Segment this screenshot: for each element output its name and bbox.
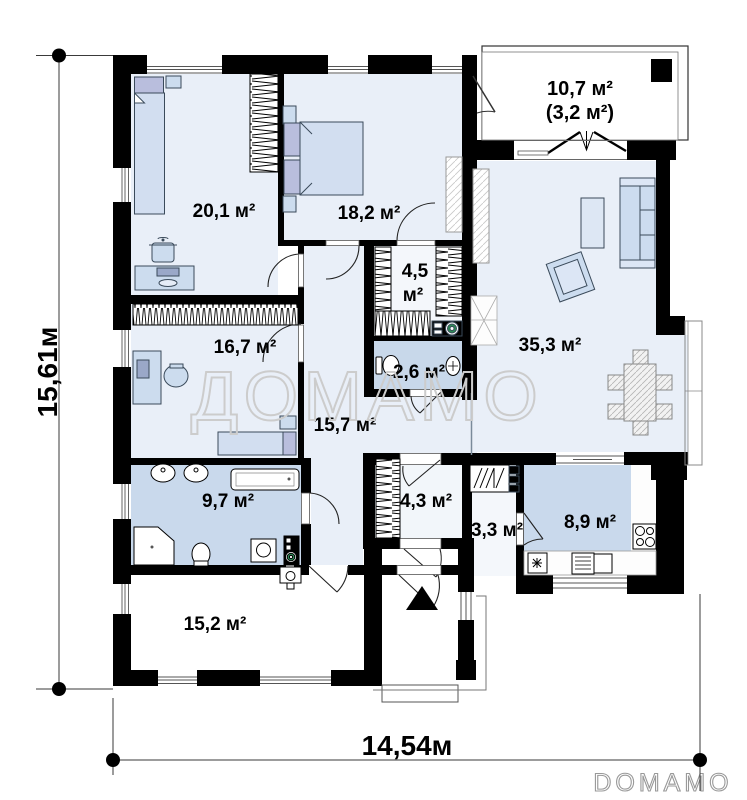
svg-text:16,7 м²: 16,7 м²	[214, 337, 277, 358]
svg-text:4,3 м²: 4,3 м²	[400, 491, 452, 512]
svg-text:3,3 м²: 3,3 м²	[471, 520, 523, 541]
svg-text:15,61м: 15,61м	[32, 327, 63, 418]
svg-text:18,2 м²: 18,2 м²	[338, 203, 401, 224]
svg-text:20,1 м²: 20,1 м²	[193, 201, 256, 222]
svg-text:DOMAMO: DOMAMO	[593, 769, 732, 797]
svg-text:35,3 м²: 35,3 м²	[519, 335, 582, 356]
svg-text:9,7 м²: 9,7 м²	[202, 491, 254, 512]
svg-text:(3,2 м²): (3,2 м²)	[546, 102, 614, 124]
svg-text:4,5: 4,5	[402, 261, 429, 282]
svg-text:м²: м²	[403, 285, 423, 306]
svg-text:10,7 м²: 10,7 м²	[547, 78, 613, 100]
svg-text:14,54м: 14,54м	[362, 730, 453, 761]
svg-text:ДОМАМО: ДОМАМО	[191, 357, 544, 435]
svg-text:15,2 м²: 15,2 м²	[184, 614, 247, 635]
svg-text:8,9 м²: 8,9 м²	[564, 512, 616, 533]
